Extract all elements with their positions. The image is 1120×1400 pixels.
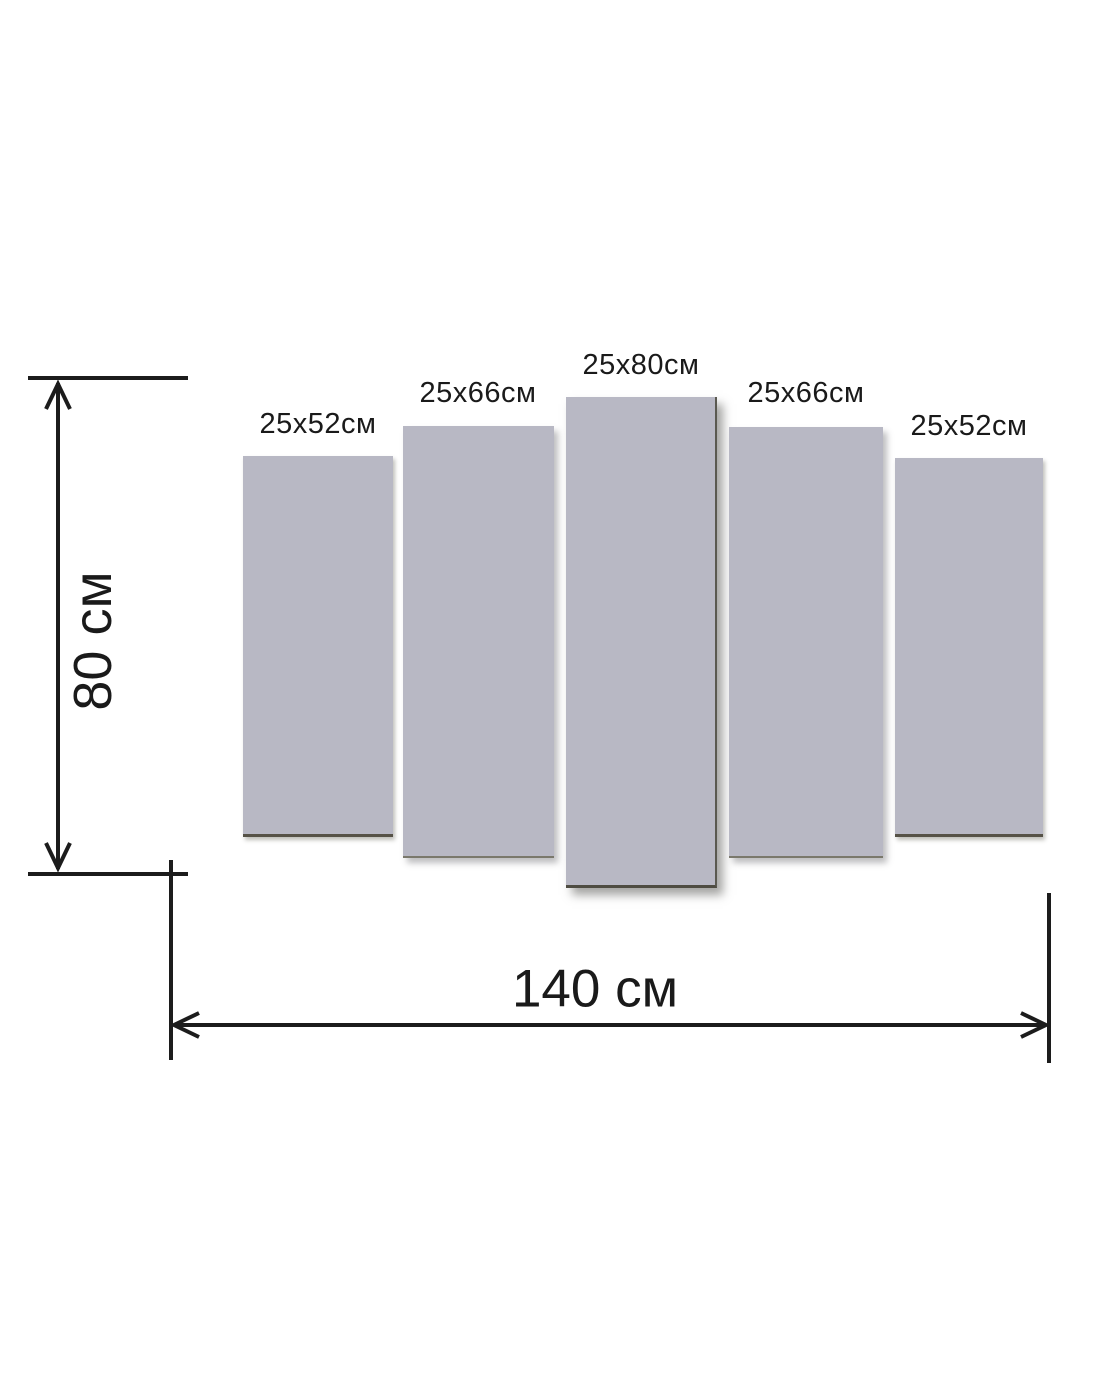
panel-5-size-label: 25x52см [859, 412, 1079, 441]
panel-2 [403, 426, 554, 858]
height-dim-bottom-cap [28, 872, 188, 876]
panel-1-size-label: 25x52см [208, 410, 428, 439]
panel-4-size-label: 25x66см [696, 379, 916, 408]
panel-1 [243, 456, 393, 837]
panel-4 [729, 427, 883, 858]
panel-2-size-label: 25x66см [368, 379, 588, 408]
height-dimension-label: 80 см [62, 571, 124, 710]
panel-5 [895, 458, 1043, 837]
modular-picture-size-diagram: 80 см 140 см 25x52см 25x66см 25x80см 25x… [0, 0, 1120, 1400]
panel-3 [566, 397, 717, 888]
width-dimension-label: 140 см [512, 959, 678, 1020]
panel-3-size-label: 25x80см [531, 351, 751, 380]
